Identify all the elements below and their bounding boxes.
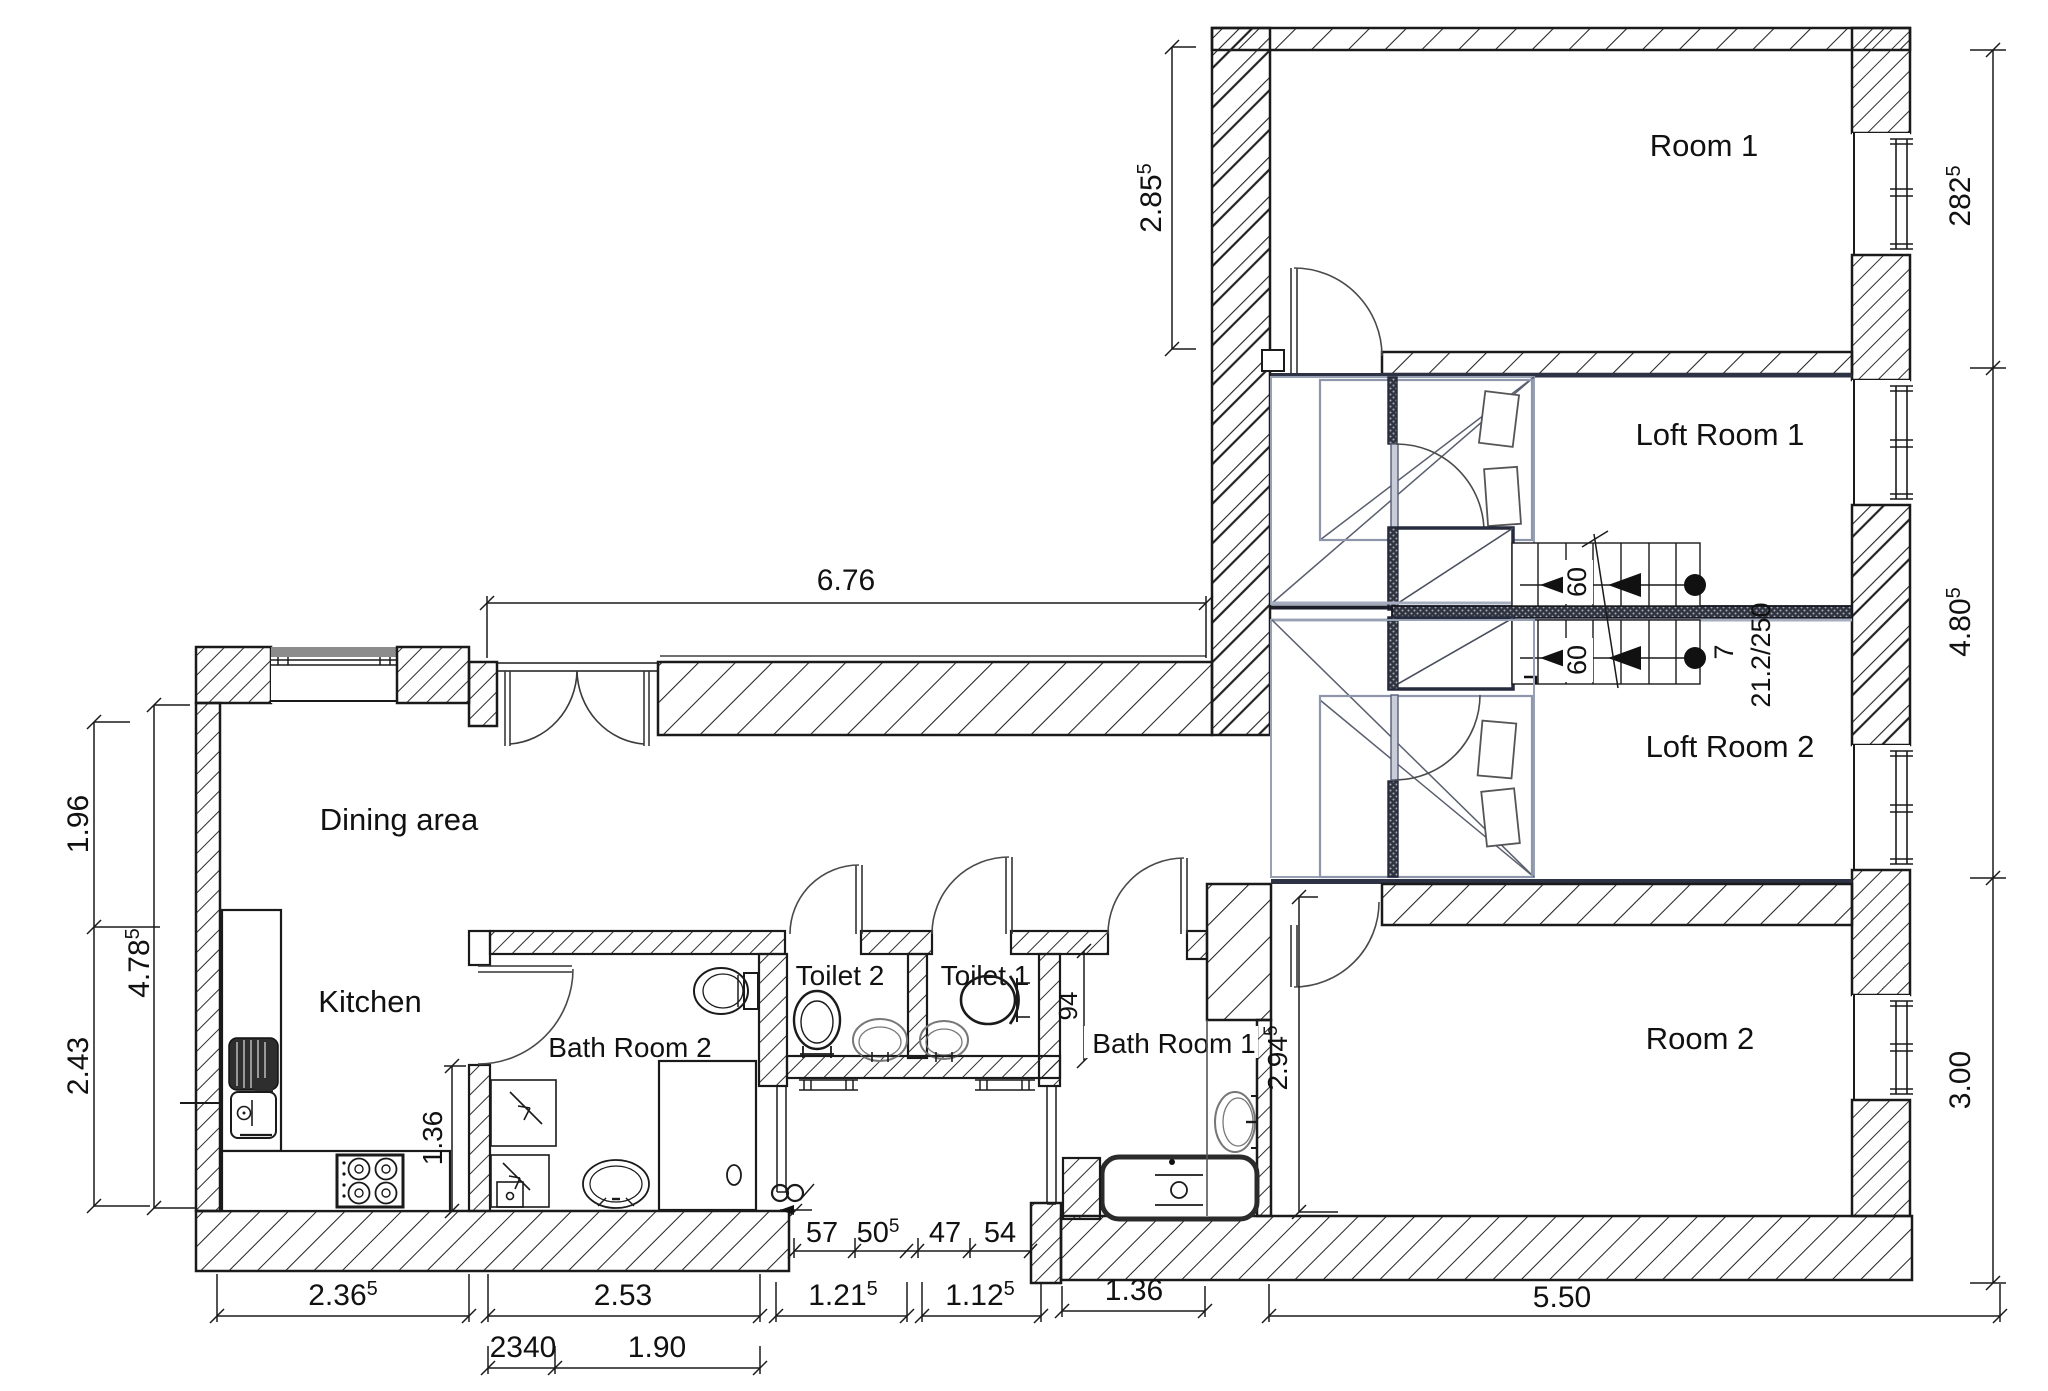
svg-text:21.2/250: 21.2/250	[1746, 602, 1776, 707]
svg-text:7: 7	[1709, 644, 1739, 659]
svg-text:2.43: 2.43	[62, 1037, 95, 1095]
svg-text:47: 47	[929, 1217, 961, 1249]
svg-text:3.00: 3.00	[1944, 1051, 1977, 1109]
svg-text:Bath Room 2: Bath Room 2	[548, 1032, 711, 1063]
svg-text:1.90: 1.90	[628, 1331, 686, 1364]
svg-text:5.50: 5.50	[1533, 1281, 1591, 1314]
svg-text:Bath Room 1: Bath Room 1	[1092, 1028, 1255, 1059]
svg-text:Room 2: Room 2	[1646, 1021, 1755, 1056]
svg-text:6.76: 6.76	[817, 564, 875, 597]
svg-text:1.96: 1.96	[62, 795, 95, 853]
svg-text:57: 57	[806, 1217, 838, 1249]
svg-text:Loft Room 2: Loft Room 2	[1646, 729, 1815, 764]
svg-text:60: 60	[1562, 645, 1592, 675]
svg-text:2.53: 2.53	[594, 1279, 652, 1312]
svg-text:Room 1: Room 1	[1650, 128, 1759, 163]
svg-text:1.36: 1.36	[1105, 1274, 1163, 1307]
svg-text:Toilet 2: Toilet 2	[796, 960, 885, 991]
svg-text:94: 94	[1053, 992, 1083, 1021]
svg-text:60: 60	[1562, 567, 1592, 597]
svg-text:54: 54	[984, 1217, 1016, 1249]
svg-text:1.36: 1.36	[417, 1111, 448, 1166]
svg-text:Kitchen: Kitchen	[318, 984, 421, 1019]
svg-text:Loft Room 1: Loft Room 1	[1636, 417, 1805, 452]
svg-text:2340: 2340	[490, 1331, 557, 1364]
svg-text:Dining area: Dining area	[320, 802, 479, 837]
